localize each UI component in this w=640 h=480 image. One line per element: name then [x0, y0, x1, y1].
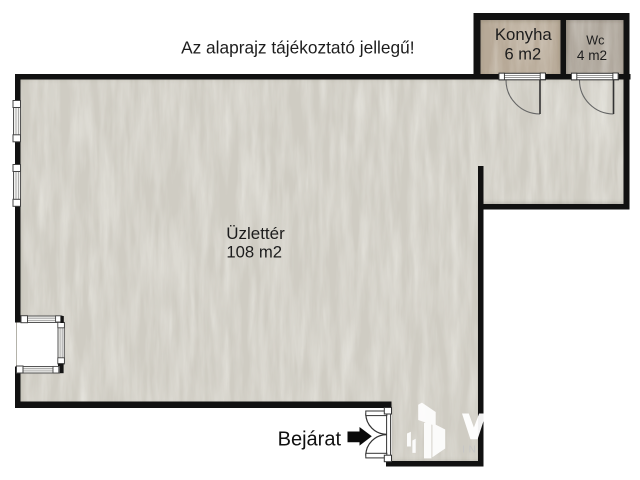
svg-text:108 m2: 108 m2: [226, 243, 282, 262]
svg-text:6 m2: 6 m2: [505, 45, 542, 63]
svg-text:Bejárat: Bejárat: [278, 428, 342, 450]
svg-text:Üzlettér: Üzlettér: [226, 224, 285, 243]
svg-text:Konyha: Konyha: [495, 25, 553, 44]
svg-text:Az alaprajz tájékoztató jelleg: Az alaprajz tájékoztató jellegű!: [181, 37, 414, 57]
svg-text:Wc: Wc: [586, 33, 604, 47]
svg-text:IN: IN: [462, 444, 479, 455]
svg-text:4 m2: 4 m2: [577, 48, 607, 63]
